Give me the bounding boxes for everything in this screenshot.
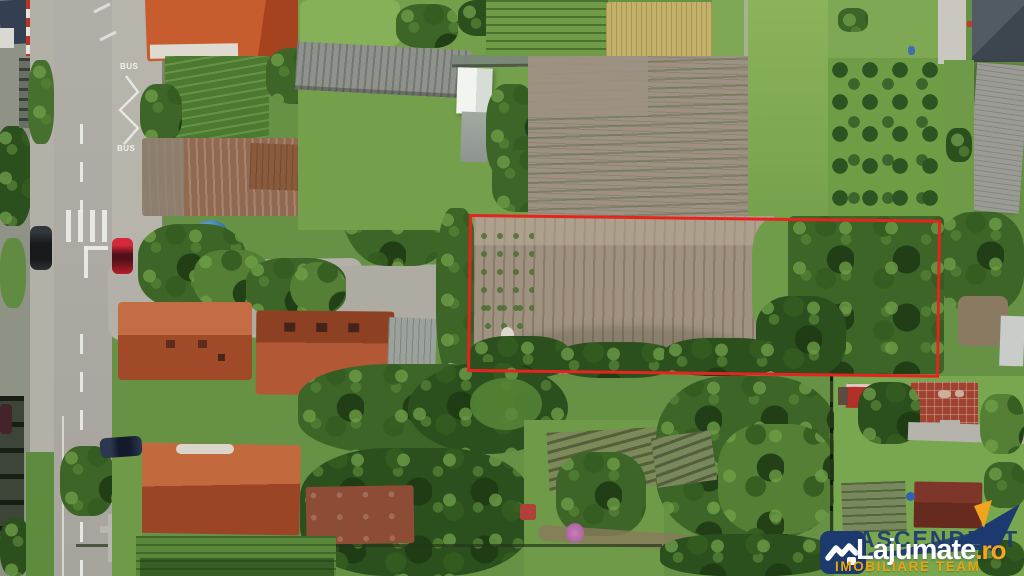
bush-cluster: [718, 424, 834, 534]
shed-dark: [838, 387, 848, 405]
stop-line: [84, 246, 88, 278]
barn-roof: [295, 41, 471, 98]
grass-verge: [26, 452, 54, 576]
hedge: [0, 238, 26, 308]
lane-arrow-marking: [86, 0, 126, 48]
tree-cluster: [0, 126, 32, 226]
hedge: [28, 60, 54, 144]
house-roof-hip: [118, 302, 252, 380]
path: [938, 0, 966, 64]
dormer: [348, 323, 359, 332]
aerial-photo: BUS BUS: [0, 0, 1024, 576]
garden-plot: [486, 0, 608, 56]
bush: [980, 394, 1024, 454]
red-object: [520, 504, 536, 520]
garden-dark-band: [140, 558, 334, 576]
bus-marking: BUS: [120, 62, 138, 71]
building-roof: [0, 28, 14, 48]
crosswalk: [66, 210, 110, 242]
barn-roof-long: [967, 62, 1024, 213]
garden-plot: [651, 430, 717, 488]
grass-field: [748, 0, 830, 220]
path: [940, 420, 960, 436]
dormer: [166, 340, 175, 348]
flowering-bush: [566, 523, 584, 543]
round-bush: [290, 262, 346, 314]
plot-outline: [467, 214, 941, 378]
dormer: [284, 323, 295, 332]
roof-pipe: [176, 444, 234, 454]
tree-cluster: [140, 84, 182, 142]
lawn-light: [300, 0, 400, 46]
watermark-tagline: IMOBILIARE TEAM: [835, 559, 981, 574]
yellow-field: [606, 2, 714, 58]
chimney: [218, 354, 225, 361]
car-navy: [99, 436, 142, 459]
skylight: [938, 390, 951, 398]
lane-dashes: [80, 124, 83, 212]
parked-car-red: [112, 238, 133, 274]
tree-cluster: [396, 4, 458, 48]
silver-roof: [999, 316, 1024, 367]
bush: [838, 8, 868, 32]
building-roof-slate: [972, 0, 1024, 62]
parked-car-dark: [0, 404, 12, 434]
concrete-building: [460, 112, 489, 163]
bus-marking: BUS: [117, 144, 135, 153]
person: [908, 46, 915, 55]
house-roof-long: [131, 443, 301, 536]
skylight: [955, 390, 964, 397]
orchard: [828, 58, 954, 220]
hedge: [660, 534, 834, 576]
dormer: [198, 340, 207, 348]
parked-car-black: [30, 226, 52, 270]
fence: [830, 376, 833, 532]
tilled-field-plain: [528, 56, 648, 116]
dormer: [316, 323, 327, 332]
lane-dashes: [80, 334, 83, 462]
bush: [946, 128, 972, 162]
